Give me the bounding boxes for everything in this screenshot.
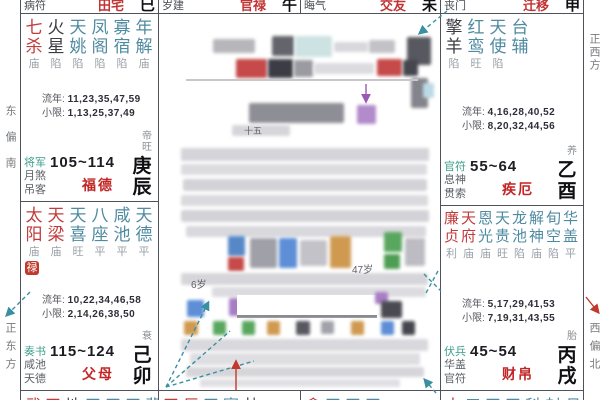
censor-block <box>381 301 402 318</box>
star: 天贵旺 <box>494 210 511 261</box>
star: 七杀庙 <box>23 18 45 71</box>
star: 解神庙 <box>528 210 545 261</box>
grid-border <box>20 390 584 391</box>
lu-transform-badge: 禄 <box>25 261 39 275</box>
censor-block <box>267 321 280 335</box>
decade-age-range: 55~64 <box>470 158 517 175</box>
censor-block <box>357 105 376 124</box>
palace-cell-jie[interactable]: 擎羊陷红鸾旺天使陷台辅 流年: 4,16,28,40,52 小限: 8,20,3… <box>440 13 583 205</box>
grid-border <box>440 0 441 400</box>
decade-age-range: 105~114 <box>50 154 115 171</box>
grid-border <box>300 390 301 400</box>
censor-block <box>181 195 428 206</box>
star: 天府庙 <box>460 210 477 261</box>
direction-label-east-south: 东偏南 <box>2 105 18 183</box>
censor-block <box>249 103 344 123</box>
ziwei-astrology-chart: 东偏南 正东方 正西方 西偏北 病符 田宅 巳 岁建 官禄 午 晦气 交友 未 … <box>0 0 600 400</box>
censor-block <box>181 148 429 161</box>
star: 天使陷 <box>487 18 509 71</box>
censor-block <box>237 315 377 317</box>
visible-text-fragment: 6岁 <box>191 276 207 291</box>
year-god-label: 丧门 <box>444 0 466 13</box>
censor-block <box>186 367 424 377</box>
direction-label-west: 正西方 <box>586 33 600 72</box>
grid-border <box>583 0 584 400</box>
censor-block <box>334 42 368 52</box>
star: 太阳庙 <box>23 206 45 259</box>
decade-age-range: 115~124 <box>50 343 115 360</box>
branch-char: 申 <box>565 0 580 13</box>
star: 天德平 <box>133 206 155 259</box>
stem-branch: 乙酉 <box>557 160 577 202</box>
censor-block <box>314 63 374 74</box>
star-list: 廉贞利天府庙恩光庙天贵旺龙池陷解神庙旬空陷华盖平 <box>443 210 579 261</box>
decade-age-range: 45~54 <box>470 343 517 360</box>
censor-block <box>402 321 415 335</box>
censor-block <box>369 40 395 53</box>
branch-char: 未 <box>422 0 437 13</box>
natal-palace-name: 福德 <box>82 175 114 195</box>
life-stage-label: 衰 <box>141 331 153 342</box>
age-lines: 流年: 11,23,35,47,59 小限: 1,13,25,37,49 <box>42 93 141 121</box>
life-stage-label: 帝旺 <box>141 131 153 153</box>
star: 咸池平 <box>111 206 133 259</box>
censor-block <box>213 39 255 53</box>
life-stage-label: 胎 <box>566 331 578 342</box>
strip-palace-wu[interactable]: 岁建 官禄 午 <box>158 0 300 13</box>
censor-block <box>181 210 429 222</box>
grid-border <box>20 201 158 202</box>
censor-block <box>296 321 310 335</box>
palace-gods: 官符息神贯索 <box>444 161 466 202</box>
censor-block <box>403 60 418 76</box>
age-lines: 流年: 10,22,34,46,58 小限: 2,14,26,38,50 <box>42 294 141 322</box>
censor-block <box>381 321 394 335</box>
age-lines: 流年: 5,17,29,41,53 小限: 7,19,31,43,55 <box>462 298 555 326</box>
palace-cell-fumu[interactable]: 太阳庙天梁庙天喜旺八座平咸池平天德平 禄 流年: 10,22,34,46,58 … <box>20 201 158 390</box>
natal-palace-name: 财帛 <box>502 364 534 384</box>
censor-block <box>300 240 327 266</box>
branch-char: 巳 <box>140 0 155 13</box>
star-list: 太阳庙天梁庙天喜旺八座平咸池平天德平 <box>23 206 155 259</box>
star: 擎羊陷 <box>443 18 465 71</box>
star: 火星陷 <box>45 18 67 71</box>
censor-block <box>200 379 400 387</box>
visible-text-fragment: 47岁 <box>352 261 373 276</box>
visible-text-fragment: 十五 <box>244 124 262 137</box>
censor-block <box>186 79 418 81</box>
star: 红鸾旺 <box>465 18 487 71</box>
star: 年解庙 <box>133 18 155 71</box>
natal-palace-name: 父母 <box>82 364 114 384</box>
grid-border <box>300 0 301 13</box>
censor-block <box>272 36 294 56</box>
censor-block <box>213 321 226 335</box>
censor-block <box>405 238 425 266</box>
star-list: 七杀庙火星陷天姚陷凤阁陷寡宿陷年解庙 <box>23 18 155 71</box>
censor-block <box>242 321 255 335</box>
grid-border <box>158 0 159 400</box>
censor-block <box>279 238 297 268</box>
censor-block <box>187 300 204 317</box>
censor-block <box>294 60 313 77</box>
star: 寡宿陷 <box>111 18 133 71</box>
stem-branch: 丙戌 <box>557 345 577 387</box>
censor-block <box>268 59 293 78</box>
natal-palace-name: 疾厄 <box>502 179 534 199</box>
palace-cell-cutoff-yin[interactable]: 武天地天天天蜚 <box>20 391 158 400</box>
star-list: 擎羊陷红鸾旺天使陷台辅 <box>443 18 531 71</box>
censor-block <box>181 339 428 351</box>
strip-palace-si[interactable]: 病符 田宅 巳 <box>20 0 158 13</box>
censor-block <box>321 321 334 334</box>
stem-branch: 己卯 <box>132 345 152 387</box>
strip-palace-wei[interactable]: 晦气 交友 未 <box>300 0 440 13</box>
year-god-label: 晦气 <box>304 0 326 13</box>
grid-border <box>440 205 583 206</box>
censor-block <box>228 236 245 256</box>
direction-label-west-north: 西偏北 <box>586 322 600 376</box>
palace-cell-cutoff-chou[interactable]: 天巨天寡劫 <box>158 391 300 400</box>
censor-block <box>351 321 364 335</box>
strip-palace-shen[interactable]: 丧门 迁移 申 <box>440 0 583 13</box>
palace-cell-fude[interactable]: 七杀庙火星陷天姚陷凤阁陷寡宿陷年解庙 流年: 11,23,35,47,59 小限… <box>20 13 158 201</box>
annual-palace-label: 官禄 <box>240 0 266 13</box>
direction-label-east: 正东方 <box>2 322 18 376</box>
star: 恩光庙 <box>477 210 494 261</box>
censor-block <box>250 238 277 268</box>
star: 八座平 <box>89 206 111 259</box>
life-stage-label: 养 <box>566 146 578 157</box>
grid-border <box>20 13 584 14</box>
star: 旬空陷 <box>545 210 562 261</box>
branch-char: 午 <box>282 0 297 13</box>
grid-border <box>20 0 21 400</box>
censor-block <box>384 254 400 269</box>
year-god-label: 岁建 <box>162 0 184 13</box>
star: 天喜旺 <box>67 206 89 259</box>
star: 天梁庙 <box>45 206 67 259</box>
star: 凤阁陷 <box>89 18 111 71</box>
censor-block <box>228 257 244 271</box>
palace-gods: 将军月煞吊客 <box>24 157 46 198</box>
censor-block <box>384 232 402 252</box>
stem-branch: 庚辰 <box>132 156 152 198</box>
censor-block <box>183 179 427 191</box>
palace-gods: 伏兵华盖官符 <box>444 346 466 387</box>
star: 华盖平 <box>562 210 579 261</box>
censor-block <box>184 321 198 335</box>
palace-cell-cutoff-zi[interactable]: 贪天天天 <box>300 391 440 400</box>
palace-cell-cutoff-hai[interactable]: 太三天天科封月 <box>440 391 583 400</box>
star: 天姚陷 <box>67 18 89 71</box>
censor-block <box>330 236 351 268</box>
censor-block <box>295 36 332 57</box>
palace-cell-caibo[interactable]: 廉贞利天府庙恩光庙天贵旺龙池陷解神庙旬空陷华盖平 流年: 5,17,29,41,… <box>440 205 583 390</box>
censor-block <box>181 273 428 285</box>
censor-block <box>181 164 427 175</box>
star: 台辅 <box>509 18 531 71</box>
age-lines: 流年: 4,16,28,40,52 小限: 8,20,32,44,56 <box>462 106 555 134</box>
annual-palace-label: 迁移 <box>523 0 549 13</box>
palace-gods: 奏书咸池天德 <box>24 346 46 387</box>
censor-block <box>377 59 402 76</box>
star: 龙池陷 <box>511 210 528 261</box>
annual-palace-label: 田宅 <box>98 0 124 13</box>
year-god-label: 病符 <box>24 0 46 13</box>
annual-palace-label: 交友 <box>380 0 406 13</box>
star: 廉贞利 <box>443 210 460 261</box>
censor-block <box>190 353 420 365</box>
censor-block <box>236 59 267 78</box>
flying-star-arrow <box>586 297 598 312</box>
censor-block <box>423 83 434 98</box>
